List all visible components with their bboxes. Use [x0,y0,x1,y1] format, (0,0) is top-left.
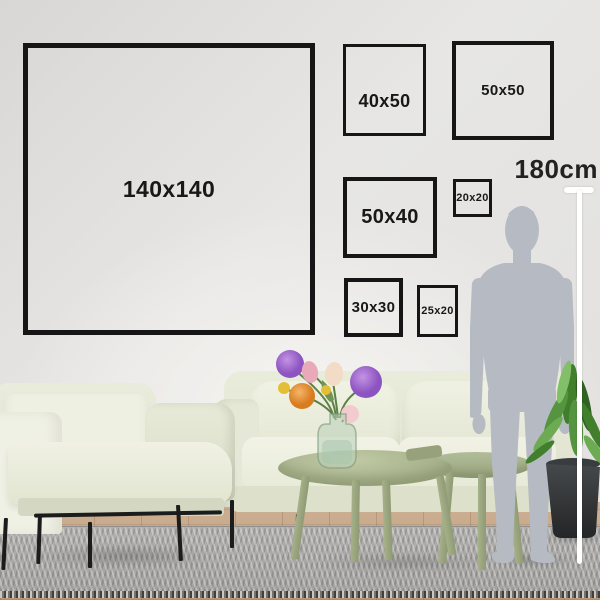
frame-30x30: 30x30 [344,278,403,337]
dahlia-flower [289,383,315,409]
measure-line [577,190,582,564]
coffee-table-leg [351,480,360,562]
vase-water [322,440,352,464]
height-reference-label: 180cm [514,154,598,185]
armchair-leg [88,522,92,568]
tulip-flower [324,361,344,387]
rug-fringe [0,591,600,598]
frame-size-label: 50x40 [361,206,419,229]
allium-flower [276,350,304,378]
frame-50x50: 50x50 [452,41,554,140]
frame-50x40: 50x40 [343,177,437,258]
frame-25x20: 25x20 [417,285,458,337]
frame-size-label: 30x30 [352,299,396,316]
allium-flower [350,366,382,398]
frame-size-label: 140x140 [123,176,215,203]
flower-vase [260,340,384,472]
frame-140x140: 140x140 [23,43,315,335]
plant-pot [546,464,600,538]
frame-size-label: 50x50 [481,82,525,99]
potted-plant [518,336,600,540]
frame-size-label: 20x20 [456,192,489,204]
plant-leaves [523,359,600,471]
billy-button-flower [321,385,331,395]
frame-size-label: 25x20 [421,305,454,317]
frame-size-mockup-scene: 140x140 40x50 50x50 50x40 20x20 30x30 25… [0,0,600,600]
frame-size-label: 40x50 [358,91,410,112]
frame-40x50: 40x50 [343,44,426,136]
sofa-leg [230,500,234,548]
armchair-seat-cushion [8,442,232,504]
billy-button-flower [278,382,290,394]
